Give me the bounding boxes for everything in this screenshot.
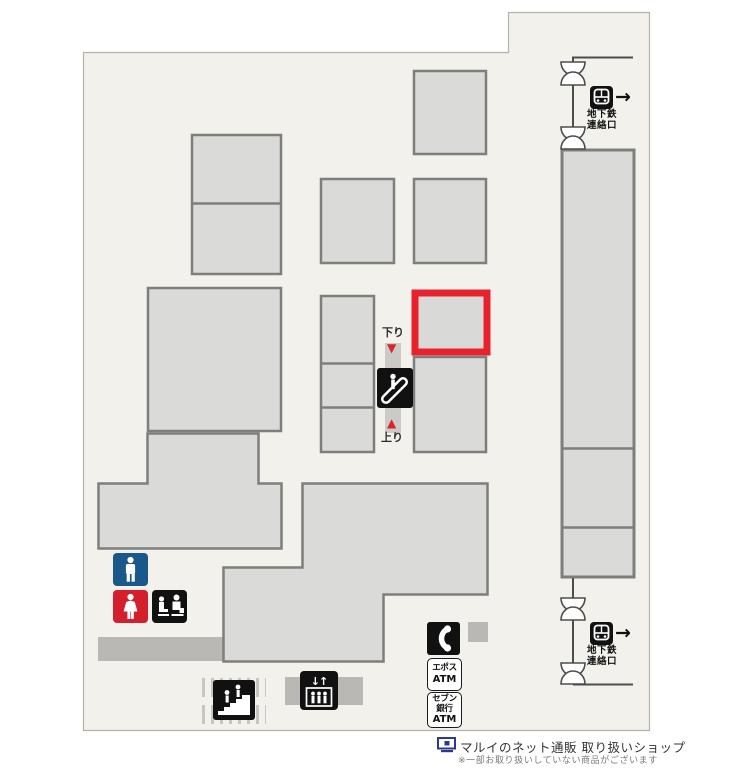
- building-center-stack: [321, 296, 374, 452]
- nursing-room-icon: [152, 590, 187, 623]
- subway-exit-arrow-icon: →: [615, 86, 631, 109]
- stairs-glyph: [213, 680, 255, 720]
- man-glyph: [113, 553, 148, 586]
- escalator-down-label: 下り: [382, 324, 404, 340]
- nursing-glyph: [152, 590, 187, 623]
- escalator-icon: [377, 368, 413, 408]
- building-right-tall: [562, 150, 634, 577]
- epos-atm-badge: エポス ATM: [427, 658, 462, 691]
- building-large-left: [148, 288, 281, 431]
- epos-atm-line2: ATM: [433, 674, 457, 685]
- building-mid-left: [321, 179, 394, 263]
- selected-shop-highlight: [415, 293, 487, 352]
- subway-entrance-label-bottom: 地下鉄 連絡口: [587, 646, 617, 667]
- building-below-highlight: [414, 357, 486, 452]
- subway-exit-arrow-icon: →: [615, 622, 631, 645]
- subway-train-icon: [590, 622, 613, 645]
- escalator-down-arrow-icon: ▼: [387, 342, 396, 354]
- monitor-glyph: [437, 737, 457, 753]
- mens-toilet-icon: [113, 553, 148, 586]
- phone-glyph: [427, 622, 460, 655]
- subway-train-icon: [590, 86, 613, 109]
- seven-bank-atm-badge: セブン 銀行 ATM: [427, 692, 462, 728]
- building-top-center: [414, 71, 486, 154]
- elevator-cab-glyph: [305, 687, 333, 707]
- subway-entrance-label-top: 地下鉄 連絡口: [587, 110, 617, 131]
- elevator-icon: ↓↑: [300, 671, 338, 710]
- epos-atm-line1: エポス: [432, 664, 457, 674]
- subway-label-line2: 連絡口: [587, 121, 617, 132]
- walkway-bar: [98, 637, 223, 661]
- seven-atm-line2: 銀行: [436, 705, 452, 715]
- train-glyph: [590, 622, 613, 645]
- womens-toilet-icon: [113, 590, 148, 623]
- footer-legend-note: ※一部お取り扱いしていない商品がございます: [458, 753, 658, 766]
- train-glyph: [590, 86, 613, 109]
- small-fixture-square: [468, 622, 488, 642]
- public-phone-icon: [427, 622, 460, 655]
- building-mid-right: [414, 179, 486, 263]
- floor-plan-canvas: [0, 0, 730, 770]
- net-shop-monitor-icon: [437, 737, 457, 753]
- escalator-glyph: [377, 368, 413, 408]
- escalator-up-label: 上り: [381, 429, 403, 445]
- woman-glyph: [113, 590, 148, 623]
- seven-atm-line3: ATM: [433, 714, 457, 725]
- escalator-up-arrow-icon: ▲: [387, 417, 396, 429]
- stairs-icon: [213, 680, 255, 720]
- subway-label-line2: 連絡口: [587, 657, 617, 668]
- floor-map-page: 下り ▼ ▲ 上り: [0, 0, 730, 770]
- elevator-arrows: ↓↑: [311, 676, 327, 687]
